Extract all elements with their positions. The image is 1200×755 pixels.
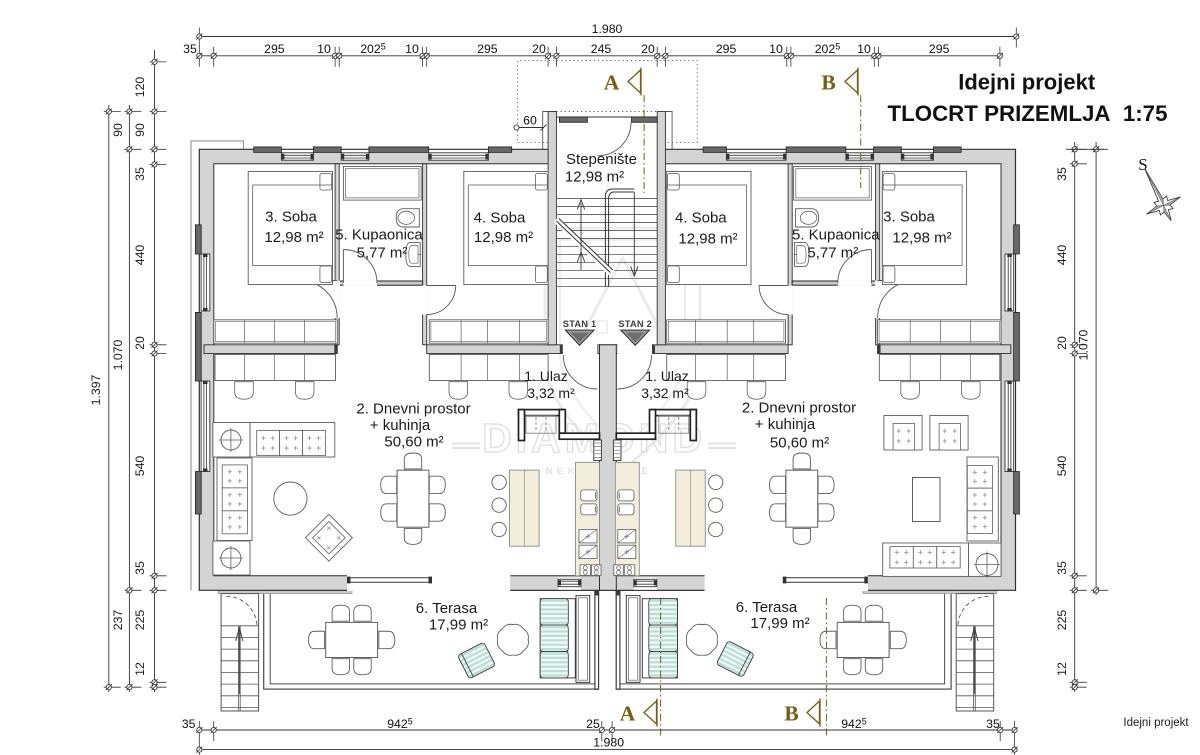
svg-text:50,60 m²: 50,60 m² xyxy=(384,434,443,451)
svg-text:1.070: 1.070 xyxy=(1077,329,1091,360)
svg-text:10: 10 xyxy=(317,42,331,56)
svg-text:1. Ulaz: 1. Ulaz xyxy=(645,368,689,384)
svg-text:25: 25 xyxy=(586,717,600,731)
svg-text:STAN 1: STAN 1 xyxy=(563,319,597,329)
svg-text:5,77 m²: 5,77 m² xyxy=(807,245,858,262)
svg-text:35: 35 xyxy=(133,561,147,575)
svg-text:35: 35 xyxy=(1055,167,1069,181)
svg-text:35: 35 xyxy=(1055,561,1069,575)
svg-text:10: 10 xyxy=(769,42,783,56)
svg-text:540: 540 xyxy=(1055,456,1069,477)
svg-text:12,98 m²: 12,98 m² xyxy=(474,229,533,246)
svg-text:35: 35 xyxy=(182,717,196,731)
svg-text:1.397: 1.397 xyxy=(89,374,103,405)
svg-text:1. Ulaz: 1. Ulaz xyxy=(524,368,568,384)
svg-text:Stepenište: Stepenište xyxy=(566,151,637,168)
svg-text:225: 225 xyxy=(133,610,147,631)
svg-text:12,98 m²: 12,98 m² xyxy=(565,169,624,186)
svg-text:STAN 2: STAN 2 xyxy=(618,319,652,329)
svg-text:1.980: 1.980 xyxy=(592,22,623,36)
svg-text:4. Soba: 4. Soba xyxy=(675,210,727,227)
svg-text:440: 440 xyxy=(133,245,147,266)
svg-text:Idejni projekt: Idejni projekt xyxy=(958,70,1096,95)
svg-text:5. Kupaonica: 5. Kupaonica xyxy=(335,227,423,244)
svg-text:S: S xyxy=(1138,155,1147,174)
svg-text:237: 237 xyxy=(111,610,125,631)
svg-text:295: 295 xyxy=(929,42,950,56)
svg-text:A: A xyxy=(604,71,620,95)
svg-text:6. Terasa: 6. Terasa xyxy=(416,600,478,617)
svg-text:295: 295 xyxy=(477,42,498,56)
svg-text:90: 90 xyxy=(111,123,125,137)
svg-text:Idejni projekt: Idejni projekt xyxy=(1123,717,1189,729)
svg-text:B: B xyxy=(784,702,798,726)
svg-text:4. Soba: 4. Soba xyxy=(474,210,526,227)
svg-text:35: 35 xyxy=(133,167,147,181)
svg-text:3. Soba: 3. Soba xyxy=(265,209,317,226)
svg-text:17,99 m²: 17,99 m² xyxy=(429,617,488,634)
svg-text:90: 90 xyxy=(133,123,147,137)
svg-text:10: 10 xyxy=(405,42,419,56)
svg-text:3. Soba: 3. Soba xyxy=(883,209,935,226)
svg-text:50,60 m²: 50,60 m² xyxy=(770,435,829,452)
svg-text:60: 60 xyxy=(523,114,537,128)
svg-text:35: 35 xyxy=(986,717,1000,731)
svg-text:2. Dnevni prostor: 2. Dnevni prostor xyxy=(742,400,856,417)
svg-text:1.980: 1.980 xyxy=(593,736,624,750)
svg-text:+ kuhinja: + kuhinja xyxy=(755,416,816,433)
svg-text:+ kuhinja: + kuhinja xyxy=(370,417,431,434)
svg-text:17,99 m²: 17,99 m² xyxy=(750,615,809,632)
svg-text:20: 20 xyxy=(641,42,655,56)
svg-text:6. Terasa: 6. Terasa xyxy=(736,599,798,616)
svg-text:12: 12 xyxy=(133,662,147,676)
svg-text:5,77 m²: 5,77 m² xyxy=(357,245,408,262)
svg-text:2. Dnevni prostor: 2. Dnevni prostor xyxy=(356,401,470,418)
svg-text:35: 35 xyxy=(183,42,197,56)
svg-text:295: 295 xyxy=(264,42,285,56)
svg-text:12,98 m²: 12,98 m² xyxy=(892,230,951,247)
svg-text:1.070: 1.070 xyxy=(111,339,125,370)
svg-text:20: 20 xyxy=(133,336,147,350)
svg-text:225: 225 xyxy=(1055,610,1069,631)
svg-text:B: B xyxy=(821,71,835,95)
svg-text:245: 245 xyxy=(591,42,612,56)
svg-text:3,32 m²: 3,32 m² xyxy=(527,385,575,401)
svg-text:12,98 m²: 12,98 m² xyxy=(264,229,323,246)
svg-text:3,32 m²: 3,32 m² xyxy=(641,385,689,401)
svg-text:20: 20 xyxy=(532,42,546,56)
svg-text:10: 10 xyxy=(857,42,871,56)
svg-text:12: 12 xyxy=(1055,662,1069,676)
svg-text:20: 20 xyxy=(1055,336,1069,350)
svg-text:A: A xyxy=(620,702,636,726)
svg-text:TLOCRT PRIZEMLJA 1:75: TLOCRT PRIZEMLJA 1:75 xyxy=(888,101,1168,126)
svg-text:5. Kupaonica: 5. Kupaonica xyxy=(792,227,880,244)
svg-text:12,98 m²: 12,98 m² xyxy=(678,231,737,248)
svg-text:120: 120 xyxy=(133,77,147,98)
svg-text:540: 540 xyxy=(133,456,147,477)
svg-text:295: 295 xyxy=(716,42,737,56)
svg-text:440: 440 xyxy=(1055,245,1069,266)
